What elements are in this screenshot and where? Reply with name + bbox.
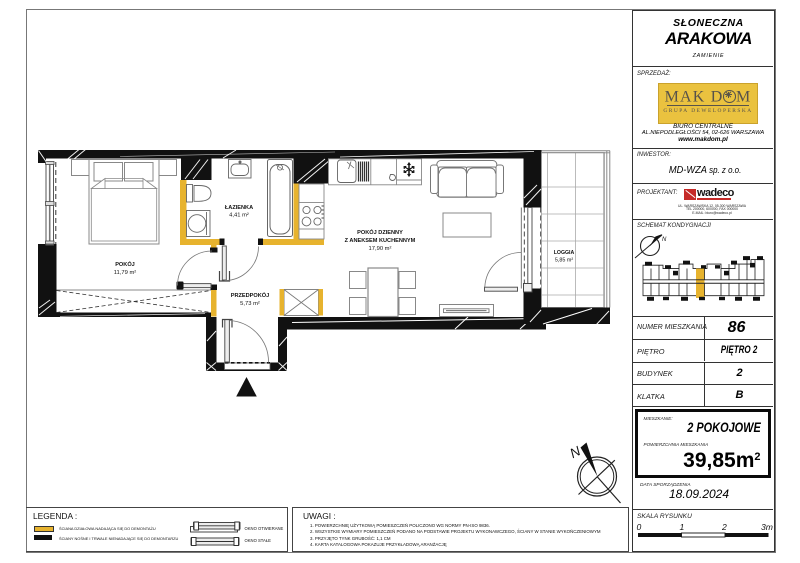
svg-text:ŁAZIENKA: ŁAZIENKA [225,205,253,211]
svg-text:1: 1 [680,522,685,532]
svg-text:POKÓJ DZIENNY: POKÓJ DZIENNY [357,228,403,236]
svg-text:5,85 m²: 5,85 m² [555,258,573,264]
svg-text:N: N [662,237,667,243]
svg-text:3m: 3m [761,522,773,532]
svg-text:POKÓJ: POKÓJ [115,260,135,268]
svg-text:LOGGIA: LOGGIA [554,250,575,256]
svg-text:11,79 m²: 11,79 m² [114,270,137,276]
svg-text:4,41 m²: 4,41 m² [229,213,249,219]
svg-text:N: N [568,443,584,461]
svg-text:17,90 m²: 17,90 m² [369,246,392,252]
svg-text:0: 0 [637,522,642,532]
svg-text:Z ANEKSEM KUCHENNYM: Z ANEKSEM KUCHENNYM [345,238,416,244]
svg-text:PRZEDPOKÓJ: PRZEDPOKÓJ [231,291,270,299]
svg-text:5,73 m²: 5,73 m² [240,301,260,307]
svg-text:2: 2 [721,522,727,532]
